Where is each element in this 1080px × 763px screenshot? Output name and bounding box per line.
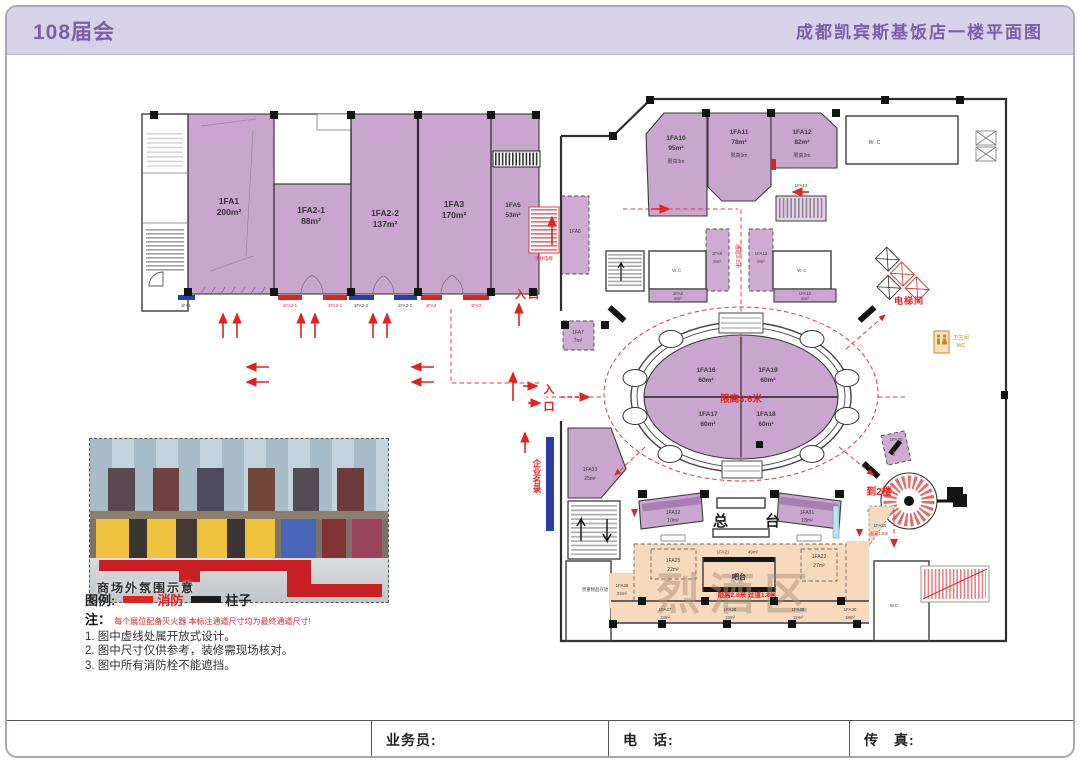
room-1fa28-id: 1FA28 — [724, 607, 737, 612]
room-1fa2-1-id: 1FA2-1 — [297, 205, 325, 215]
room-1fa7-area: 7m² — [574, 338, 583, 344]
room-1fa11-id: 1FA11 — [730, 129, 749, 136]
room-1fa26-area: 23m² — [617, 591, 628, 596]
room-1fa8-area: 8m² — [674, 296, 682, 301]
room-1fa13-id: 1FA13 — [755, 251, 768, 256]
room-1fa16-area: 60m² — [698, 377, 714, 384]
room-1fa10-area: 95m² — [668, 145, 684, 152]
room-1fa5-area: 53m² — [505, 212, 521, 219]
phone-field[interactable]: 电 话: — [608, 721, 849, 756]
room-1fa32-area: 10m² — [667, 518, 679, 524]
to-2f-label: 到2楼 — [866, 485, 892, 498]
facade-beam — [90, 511, 388, 519]
shop-unit-dark — [322, 519, 346, 558]
room-1fa1-area: 200m² — [217, 207, 242, 217]
footer-bar: 业务员: 电 话: 传 真: — [7, 720, 1073, 756]
room-1fa17-id: 1FA17 — [698, 411, 718, 418]
storefront-label: 1FA1 — [181, 303, 192, 308]
shop-unit-dark — [352, 519, 382, 558]
legend: 图例: 消防 柱子 — [85, 590, 251, 609]
room-1fa22-id: 1FA22 — [812, 554, 827, 560]
legend-column-label: 柱子 — [225, 590, 251, 609]
room-1fa10-id: 1FA10 — [666, 135, 686, 142]
storefront-bars: 1FA1 1FA2-1 1FA2-1 1FA2-2 1FA2-2 1FA3 1F… — [178, 295, 489, 308]
mall-exterior-photo: 商场外氛围示意 — [89, 438, 389, 603]
shop-unit-yellow — [197, 519, 227, 558]
wc-label-mid-left: W.C — [672, 268, 682, 273]
middle-section: 手扶电梯 1FA6 1FA7 7m² — [529, 196, 644, 350]
shop-unit-yellow — [96, 519, 129, 558]
salesperson-field[interactable]: 业务员: — [371, 721, 608, 756]
oval-height-note: 限高3.6米 — [720, 393, 762, 405]
storefront-label: 1FA2-2 — [354, 303, 369, 308]
room-1fa9-area: 8m² — [713, 259, 721, 264]
room-1fa1-id: 1FA1 — [219, 196, 240, 206]
fax-field[interactable]: 传 真: — [849, 721, 1073, 756]
legend-fire-label: 消防 — [157, 590, 183, 609]
room-1fa29-area: 11m² — [793, 615, 803, 620]
room-1fa33-id: 1FA33 — [583, 467, 598, 473]
notes-warning: 每个展位配备灭火器 本标注通道尺寸均为最终通道尺寸! — [114, 617, 310, 626]
spirits-zone: 烈酒区 1FA25 22m² 1FA21 49m² 1FA22 27m² 吧台 … — [609, 541, 869, 623]
room-1fa6-id: 1FA6 — [569, 229, 581, 235]
room-1fa32-id: 1FA32 — [666, 510, 681, 516]
room-1fa17-area: 60m² — [700, 421, 716, 428]
red-carpet-bottom — [287, 584, 382, 597]
room-1fa3-area: 170m² — [442, 210, 467, 220]
restroom-label: 卫生间 — [953, 333, 969, 341]
notes-block: 注： 每个展位配备灭火器 本标注通道尺寸均为最终通道尺寸! 1. 图中虚线处属开… — [85, 613, 311, 673]
corridor-width-note: 通道3.5米 — [734, 244, 742, 269]
room-1fa20-id: 1FA20 — [890, 437, 903, 442]
room-1fa30-id2: 1FA30 — [874, 523, 887, 528]
room-1fa10-note: 限高3m — [668, 158, 685, 165]
column-swatch — [191, 596, 221, 603]
shop-door — [129, 519, 147, 558]
room-1fa19-area: 60m² — [760, 377, 776, 384]
room-1fa5-id: 1FA5 — [505, 202, 521, 209]
room-1fa12-id: 1FA12 — [792, 129, 812, 136]
entrance-label-2a: 入 — [544, 383, 555, 396]
room-1fa18-id: 1FA18 — [756, 411, 776, 418]
escalator-label: 手扶电梯 — [535, 255, 553, 262]
room-1fa25-id: 1FA25 — [666, 558, 681, 564]
wc-label-mid-right: W.C — [797, 268, 807, 273]
room-1fa14-id: 1FA14 — [795, 183, 808, 188]
wc-label-bottom: W.C — [890, 603, 898, 608]
storefront-label: 1FA3 — [471, 303, 482, 308]
storefront-label: 1FA2-1 — [283, 303, 298, 308]
page-frame: 108届会 成都凯宾斯基饭店一楼平面图 — [5, 5, 1075, 758]
page-title: 108届会 — [7, 16, 115, 46]
shop-door — [176, 519, 197, 558]
room-1fa26-id: 1FA26 — [616, 583, 629, 588]
room-1fa30-id: 1FA30 — [844, 607, 857, 612]
front-desk-label: 总台 — [713, 512, 817, 530]
room-1fa28-area: 13m² — [725, 615, 736, 620]
room-1fa12-area: 82m² — [794, 139, 810, 146]
elevator-hall-label: 电梯间 — [894, 295, 924, 306]
fire-swatch — [123, 596, 153, 603]
storefront-label: 1FA2-2 — [398, 303, 413, 308]
company-directory-board — [546, 437, 554, 531]
bar-counter-label: 吧台 — [732, 572, 746, 581]
room-1fa25-area: 22m² — [667, 567, 679, 573]
room-1fa30-area: 18m² — [845, 615, 856, 620]
note-item-3: 3. 图中所有消防栓不能遮挡。 — [85, 659, 311, 674]
note-item-1: 1. 图中虚线处属开放式设计。 — [85, 630, 311, 645]
restroom-icon — [934, 331, 949, 353]
room-1fa30-note: 限高1.8米 — [870, 530, 889, 537]
room-1fa11-area: 78m² — [731, 139, 747, 146]
room-1fa3-id: 1FA3 — [444, 199, 465, 209]
company-directory-label: 企业名录 — [532, 458, 542, 494]
entrance-label-2b: 口 — [544, 400, 555, 413]
bar-height-note: 限高2.8米 过道1.8米 — [718, 590, 777, 599]
room-1fa21-id: 1FA21 — [717, 550, 730, 555]
plan-title: 成都凯宾斯基饭店一楼平面图 — [796, 18, 1073, 43]
restroom-wc-label: WC — [957, 343, 966, 349]
room-1fa29-id: 1FA29 — [792, 607, 805, 612]
room-1fa2-2-area: 137m² — [373, 219, 398, 229]
room-1fa21-area: 49m² — [748, 550, 759, 555]
room-1fa33-area: 25m² — [584, 476, 596, 482]
elevator-icons-top — [976, 131, 996, 161]
room-1fa22-area: 27m² — [813, 563, 825, 569]
room-1fa11-note: 限高3m — [731, 152, 748, 159]
entrance-label-1: 入口 — [515, 288, 541, 301]
room-1fa18-area: 60m² — [758, 421, 774, 428]
shop-unit-yellow — [245, 519, 275, 558]
shop-door — [227, 519, 245, 558]
room-1fa16-id: 1FA16 — [696, 367, 716, 374]
entrance-arrows: 入口 入 口 — [223, 288, 555, 453]
storefront-label: 1FA2-1 — [328, 303, 343, 308]
valuables-label: 贵重物品存放 — [582, 586, 609, 593]
storefront-strip — [90, 519, 388, 558]
room-1fa12-note: 限高3m — [794, 152, 811, 159]
left-wing: 1FA1 200m² 1FA2-1 88m² 1FA2-2 137m² 1FA3… — [142, 114, 540, 311]
elevator-hall: 电梯间 — [846, 247, 929, 349]
room-1fa9-id: 1FA9 — [712, 251, 723, 256]
header-bar: 108届会 成都凯宾斯基饭店一楼平面图 — [7, 7, 1073, 55]
legend-title: 图例: — [85, 590, 115, 609]
room-1fa15-area: 8m² — [801, 296, 809, 301]
room-1fa7-id: 1FA7 — [572, 330, 584, 336]
room-1fa19-id: 1FA19 — [758, 367, 778, 374]
room-1fa2-2-id: 1FA2-2 — [371, 208, 399, 218]
red-carpet-horizontal — [99, 560, 308, 571]
wc-label-top: W.C — [869, 140, 881, 146]
storefront-label: 1FA3 — [426, 303, 437, 308]
bottom-right-block: W.C — [874, 561, 989, 641]
room-1fa2-1-area: 88m² — [301, 216, 321, 226]
shop-unit-yellow — [147, 519, 177, 558]
room-1fa13-area: 8m² — [757, 259, 765, 264]
room-1fa27-area: 13m² — [660, 615, 671, 620]
room-1fa27-id: 1FA27 — [659, 607, 672, 612]
note-item-2: 2. 图中尺寸仅供参考，装修需现场核对。 — [85, 644, 311, 659]
notes-prefix: 注： — [85, 612, 111, 627]
shop-unit-blue — [281, 519, 317, 558]
